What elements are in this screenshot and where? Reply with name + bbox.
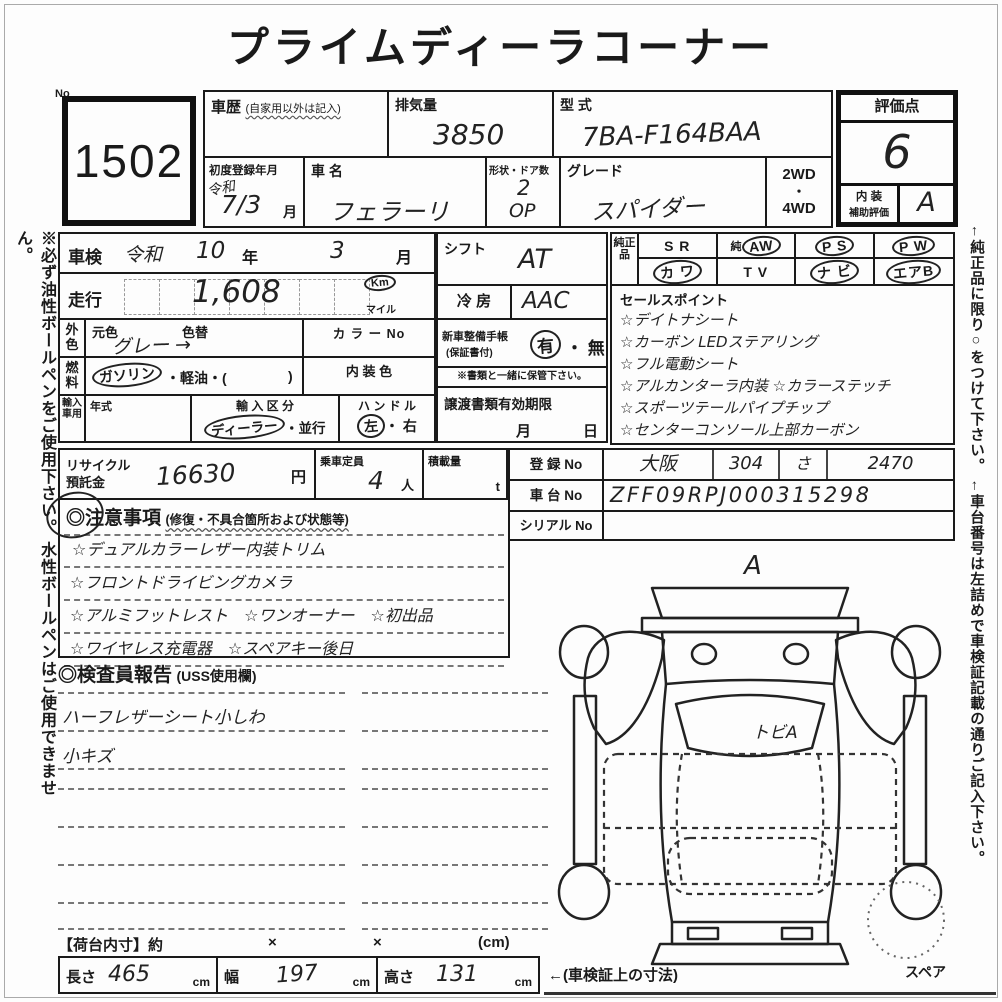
cabin-outline-dashed [604,754,896,884]
shaken-month-unit: 月 [396,244,412,268]
car-damage-diagram: A トビA [548,540,952,968]
recycle-cell: リサイクル 預託金 16630 円 [58,448,316,500]
score-box: 評価点 6 内 装 補助評価 A [836,90,958,227]
service-book-label1: 新車整備手帳 [442,328,508,344]
first-reg-cell: 初度登録年月 令和 7/3 月 [203,156,305,228]
ruled-line [58,772,345,790]
width-value: 197 [275,961,319,989]
reg-no-label: 登 録 No [510,450,604,479]
service-book-cell: 新車整備手帳 (保証書付) 有 ・ 無 [436,318,608,368]
shaken-row: 車検 令和 10 年 3 月 [58,232,436,274]
fuel-rest: ・軽油・( [166,368,227,388]
genuine-navi: ナ ビ [796,259,875,284]
import-row: 輸入車用 年式 輸 入 区 分 ディーラー・並行 ハ ン ド ル 左・ 右 [58,394,436,443]
ruled-line [362,886,548,904]
shape-doors-cell: 形状・ドア数 2 OP [485,156,561,228]
reg-area: 大阪 [604,450,712,479]
shaken-year: 10 [196,238,225,264]
transfer-docs-cell: 譲渡書類有効期限 月 日 [436,386,608,443]
car-name-label: 車 名 [311,163,343,179]
interior-score-label2: 補助評価 [841,204,897,219]
exterior-color-value: グレー → [112,330,192,360]
model-code-label: 型 式 [560,97,592,113]
handle-left: 左 [356,413,386,439]
cargo-dims-label: 【荷台内寸】約 [58,934,163,955]
import-year-label: 年式 [90,398,112,414]
hood-vent-left [692,644,716,664]
service-book-label2: (保証書付) [446,344,493,359]
times-mark: × [373,934,382,951]
shape-doors-value1: 2 [517,176,530,200]
car-name-cell: 車 名 フェラーリ [303,156,487,228]
transfer-docs-label: 譲渡書類有効期限 [444,393,552,413]
shaken-month: 3 [330,238,345,264]
cautions-box: ◎注意事項 (修復・不具合箇所および状態等) ☆デュアルカラーレザー内装トリム … [58,498,510,658]
sales-point-item: ☆アルカンターラ内装 ☆カラーステッチ [620,375,945,397]
chassis-no-label: 車 台 No [510,481,604,510]
width-cell: 幅 197 cm [216,956,378,994]
mileage-unit-mile: マイル [366,301,396,316]
model-code-cell: 型 式 7BA-F164BAA [552,90,833,158]
import-dealer: ディーラー [204,412,286,443]
history-label: 車歴 [211,99,241,116]
displacement-label: 排気量 [395,97,437,113]
rear-skirt [652,944,848,964]
mileage-unit-km: Km [363,274,396,293]
ruled-line [362,752,548,770]
left-margin-note: ※必ず油性ボールペンをご使用下さい。 水性ボールペンはご使用できません。 [10,230,58,805]
score-header: 評価点 [841,95,953,123]
recycle-value: 16630 [155,458,236,491]
engine-cover-dashed [668,838,832,894]
right-margin-note: ←純正品に限り○をつけて下さい。 ←車台番号は左詰めで車検証記載の通りご記入下さ… [966,224,987,869]
import-division-label: 輸 入 区 分 [192,396,338,414]
aircon-label: 冷 房 [438,286,512,318]
shift-cell: シフト AT [436,232,608,286]
fuel-close-paren: ) [288,368,293,384]
history-cell: 車歴 (自家用以外は記入) [203,90,389,158]
history-note: (自家用以外は記入) [245,103,340,115]
length-label: 長さ [66,966,96,987]
hood-vent-right [784,644,808,664]
capacity-unit: 人 [401,475,414,494]
color-no-label: カ ラ ー No [302,320,434,356]
aircon-cell: 冷 房 AAC [436,284,608,320]
bottom-rule [544,992,996,995]
genuine-pw: P W [875,234,954,259]
length-unit: cm [193,975,210,989]
drive-dot: ・ [792,184,805,200]
interior-color-label: 内 装 色 [302,358,434,394]
service-book-yes: 有 [529,329,562,361]
reg-kana: さ [778,450,826,479]
first-reg-unit: 月 [283,202,297,222]
cargo-dims-header: 【荷台内寸】約 × × (cm) [58,934,578,954]
service-book-no: ・ 無 [566,334,605,359]
chassis-no-value: ZFF09RPJ000315298 [604,481,953,510]
wheel-rear-right [891,865,941,919]
height-value: 131 [436,962,478,987]
shaken-year-unit: 年 [242,244,258,268]
first-reg-value: 7/3 [221,190,261,219]
load-unit: t [496,479,500,494]
ruled-line [362,714,548,732]
genuine-ps: P S [796,234,875,259]
sales-points-box: セールスポイント ☆デイトナシート ☆カーボン LEDステアリング ☆フル電動シ… [610,284,955,445]
ruled-line [58,848,345,866]
aircon-value: AAC [512,286,606,318]
fuel-row: 燃料 ガソリン ・軽油・( ) 内 装 色 [58,356,436,396]
handle-cell: ハ ン ド ル 左・ 右 [338,396,434,441]
exterior-color-row: 外色 元色 色替 グレー → カ ラ ー No [58,318,436,358]
sales-point-item: ☆フル電動シート [620,353,945,375]
height-label: 高さ [384,966,414,987]
cm-unit-note: (cm) [478,934,510,951]
ruled-line [362,912,548,930]
length-value: 465 [108,962,150,987]
handle-label: ハ ン ド ル [340,396,434,414]
rocker-right [904,696,926,864]
displacement-value: 3850 [433,118,504,151]
spare-tire-circle [868,882,944,958]
front-lip [642,618,858,632]
wheel-rear-left [559,865,609,919]
shaken-label: 車検 [68,243,102,268]
ruled-line [58,752,345,770]
shift-value: AT [518,244,551,275]
mileage-row: 走行 1,608 Km マイル [58,272,436,320]
genuine-sr: S R [639,234,718,259]
mileage-label: 走行 [68,286,102,311]
import-label: 輸入車用 [60,396,86,441]
interior-score-value: A [900,186,953,225]
shape-doors-value2: OP [509,200,535,222]
chassis-no-row: 車 台 No ZFF09RPJ000315298 [508,479,955,512]
drive-2wd: 2WD [782,166,815,184]
car-name-value: フェラーリ [329,192,449,227]
genuine-airb: エアB [875,259,954,284]
page-title: プライムディーラコーナー [120,14,882,66]
reg-class: 304 [712,450,778,479]
windshield-damage-note: トビA [752,723,798,743]
ruled-line [362,772,548,790]
mileage-value: 1,608 [192,274,281,310]
body-side-right [828,684,839,922]
caution-line: ☆デュアルカラーレザー内装トリム [64,534,504,568]
width-unit: cm [353,975,370,989]
door-cut-right-dashed [818,754,823,884]
caution-line: ☆アルミフットレスト ☆ワンオーナー ☆初出品 [64,601,504,634]
serial-no-label: シリアル No [510,512,604,539]
capacity-value: 4 [368,466,384,495]
score-value: 6 [841,123,953,183]
sales-points-title: セールスポイント [620,289,945,309]
hood [662,632,838,684]
handle-right: ・ 右 [385,418,417,434]
reg-no-row: 登 録 No 大阪 304 さ 2470 [508,448,955,481]
door-cut-left-dashed [677,754,682,884]
ruled-line [58,714,345,732]
fuel-label: 燃料 [60,358,86,394]
rocker-left [574,696,596,864]
genuine-aw: 純AW [718,234,797,259]
transfer-day: 日 [583,420,598,441]
body-side-left [661,684,672,922]
drive-cell: 2WD ・ 4WD [765,156,833,228]
load-cell: 積載量 t [422,448,508,500]
height-unit: cm [515,975,532,989]
wheel-front-right [892,626,940,678]
windshield [676,695,824,756]
serial-no-row: シリアル No [508,510,955,541]
diagram-top-mark: A [742,551,762,581]
ruled-line [58,886,345,904]
lot-number-box: 1502 [62,96,196,226]
drive-4wd: 4WD [782,200,815,218]
height-cell: 高さ 131 cm [376,956,540,994]
grade-cell: グレード スパイダー [559,156,767,228]
load-label: 積載量 [428,453,461,469]
displacement-cell: 排気量 3850 [387,90,554,158]
ruled-line [58,912,345,930]
auction-sheet: プライムディーラコーナー No 1502 車歴 (自家用以外は記入) 排気量 3… [0,0,1002,1002]
ruled-line [362,810,548,828]
spare-label: スペア [905,962,946,982]
reg-number: 2470 [826,450,953,479]
keep-note: ※書類と一緒に保管下さい。 [436,366,608,388]
genuine-parts-grid: 純正品 S R 純AW P S P W カ ワ T V ナ ビ エアB [610,232,955,286]
front-bumper [652,588,848,618]
rear-bumper [672,922,828,944]
genuine-tv: T V [718,259,797,284]
ruled-line [362,676,548,694]
model-code-value: 7BA-F164BAA [582,117,762,153]
shift-label: シフト [444,239,486,259]
times-mark: × [268,934,277,951]
genuine-kawa: カ ワ [639,259,718,284]
grade-label: グレード [567,163,623,179]
ruled-line [58,810,345,828]
fuel-gasoline: ガソリン [91,360,163,390]
lot-number: 1502 [74,134,184,188]
sales-point-item: ☆スポーツテールパイプチップ [620,397,945,419]
recycle-unit: 円 [291,466,306,487]
capacity-cell: 乗車定員 4 人 [314,448,424,500]
import-parallel: ・並行 [285,421,326,436]
sales-point-item: ☆デイトナシート [620,309,945,331]
wheel-front-left [560,626,608,678]
capacity-label: 乗車定員 [320,453,364,469]
cautions-subtitle: (修復・不具合箇所および状態等) [165,513,348,527]
import-division-cell: 輸 入 区 分 ディーラー・並行 [190,396,338,441]
ruled-line [58,676,345,694]
sales-point-item: ☆センターコンソール上部カーボン [620,419,945,441]
interior-score-label1: 内 装 [841,188,897,204]
caution-line: ☆フロントドライビングカメラ [64,568,504,601]
transfer-month: 月 [516,420,531,441]
taillight-right [782,928,812,939]
length-cell: 長さ 465 cm [58,956,218,994]
recycle-label2: 預託金 [66,472,105,491]
shaken-era: 令和 [124,240,162,267]
serial-no-value [604,512,953,539]
sales-point-item: ☆カーボン LEDステアリング [620,331,945,353]
shaken-dims-note: ←(車検証上の寸法) [548,964,678,985]
exterior-color-label: 外色 [60,320,86,356]
genuine-parts-label: 純正品 [612,234,639,284]
taillight-left [688,928,718,939]
first-reg-label: 初度登録年月 [209,165,278,177]
ruled-line [362,848,548,866]
width-label: 幅 [224,966,239,987]
grade-value: スパイダー [590,187,706,227]
